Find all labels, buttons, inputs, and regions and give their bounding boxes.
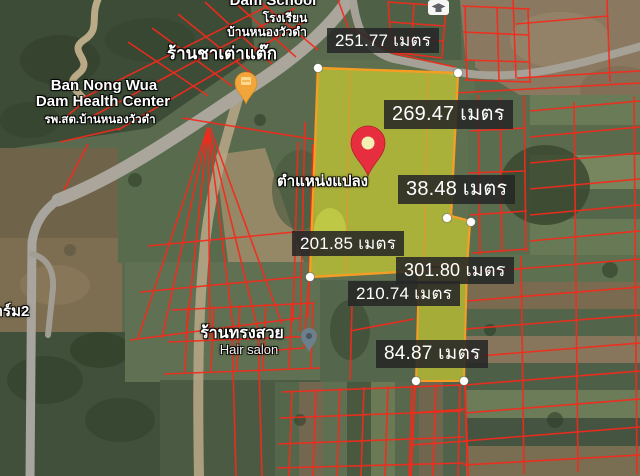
place-label-tea-shop[interactable]: ร้านชาเต่าแต๊ก xyxy=(167,40,277,67)
distance-label-strip: 84.87 เมตร xyxy=(376,340,488,368)
place-label-dam-school[interactable]: Dam School xyxy=(230,0,317,9)
distance-label-south: 210.74 เมตร xyxy=(348,281,460,306)
satellite-map-canvas[interactable]: Dam School โรงเรียน บ้านหนองวัวดำ ร้านชา… xyxy=(0,0,640,476)
school-poi-icon[interactable] xyxy=(428,0,449,15)
place-label-health-center-line2[interactable]: Dam Health Center xyxy=(36,93,170,110)
parcel-vertex-dot[interactable] xyxy=(412,377,421,386)
parcel-vertex-dot[interactable] xyxy=(460,377,469,386)
parcel-position-label: ตำแหน่งแปลง xyxy=(277,169,368,193)
parcel-vertex-dot[interactable] xyxy=(443,214,452,223)
distance-label-north: 251.77 เมตร xyxy=(327,28,439,53)
place-label-health-center-line1[interactable]: Ban Nong Wua xyxy=(51,77,157,94)
distance-label-mid: 38.48 เมตร xyxy=(398,175,515,204)
distance-label-east: 269.47 เมตร xyxy=(384,100,513,129)
distance-label-west: 201.85 เมตร xyxy=(292,231,404,256)
parcel-vertex-dot[interactable] xyxy=(314,64,323,73)
pin-hole xyxy=(362,137,375,150)
place-label-health-center-thai: รพ.สต.บ้านหนองวัวดำ xyxy=(44,111,155,129)
place-label-hair-salon-en[interactable]: Hair salon xyxy=(220,342,279,357)
place-label-farm2[interactable]: ฟาร์ม2 xyxy=(0,299,29,323)
parcel-vertex-dot[interactable] xyxy=(467,218,476,227)
parcel-vertex-dot[interactable] xyxy=(306,273,315,282)
parcel-vertex-dot[interactable] xyxy=(454,69,463,78)
distance-label-southeast: 301.80 เมตร xyxy=(396,257,514,284)
hair-salon-pin-glyph xyxy=(306,333,312,339)
